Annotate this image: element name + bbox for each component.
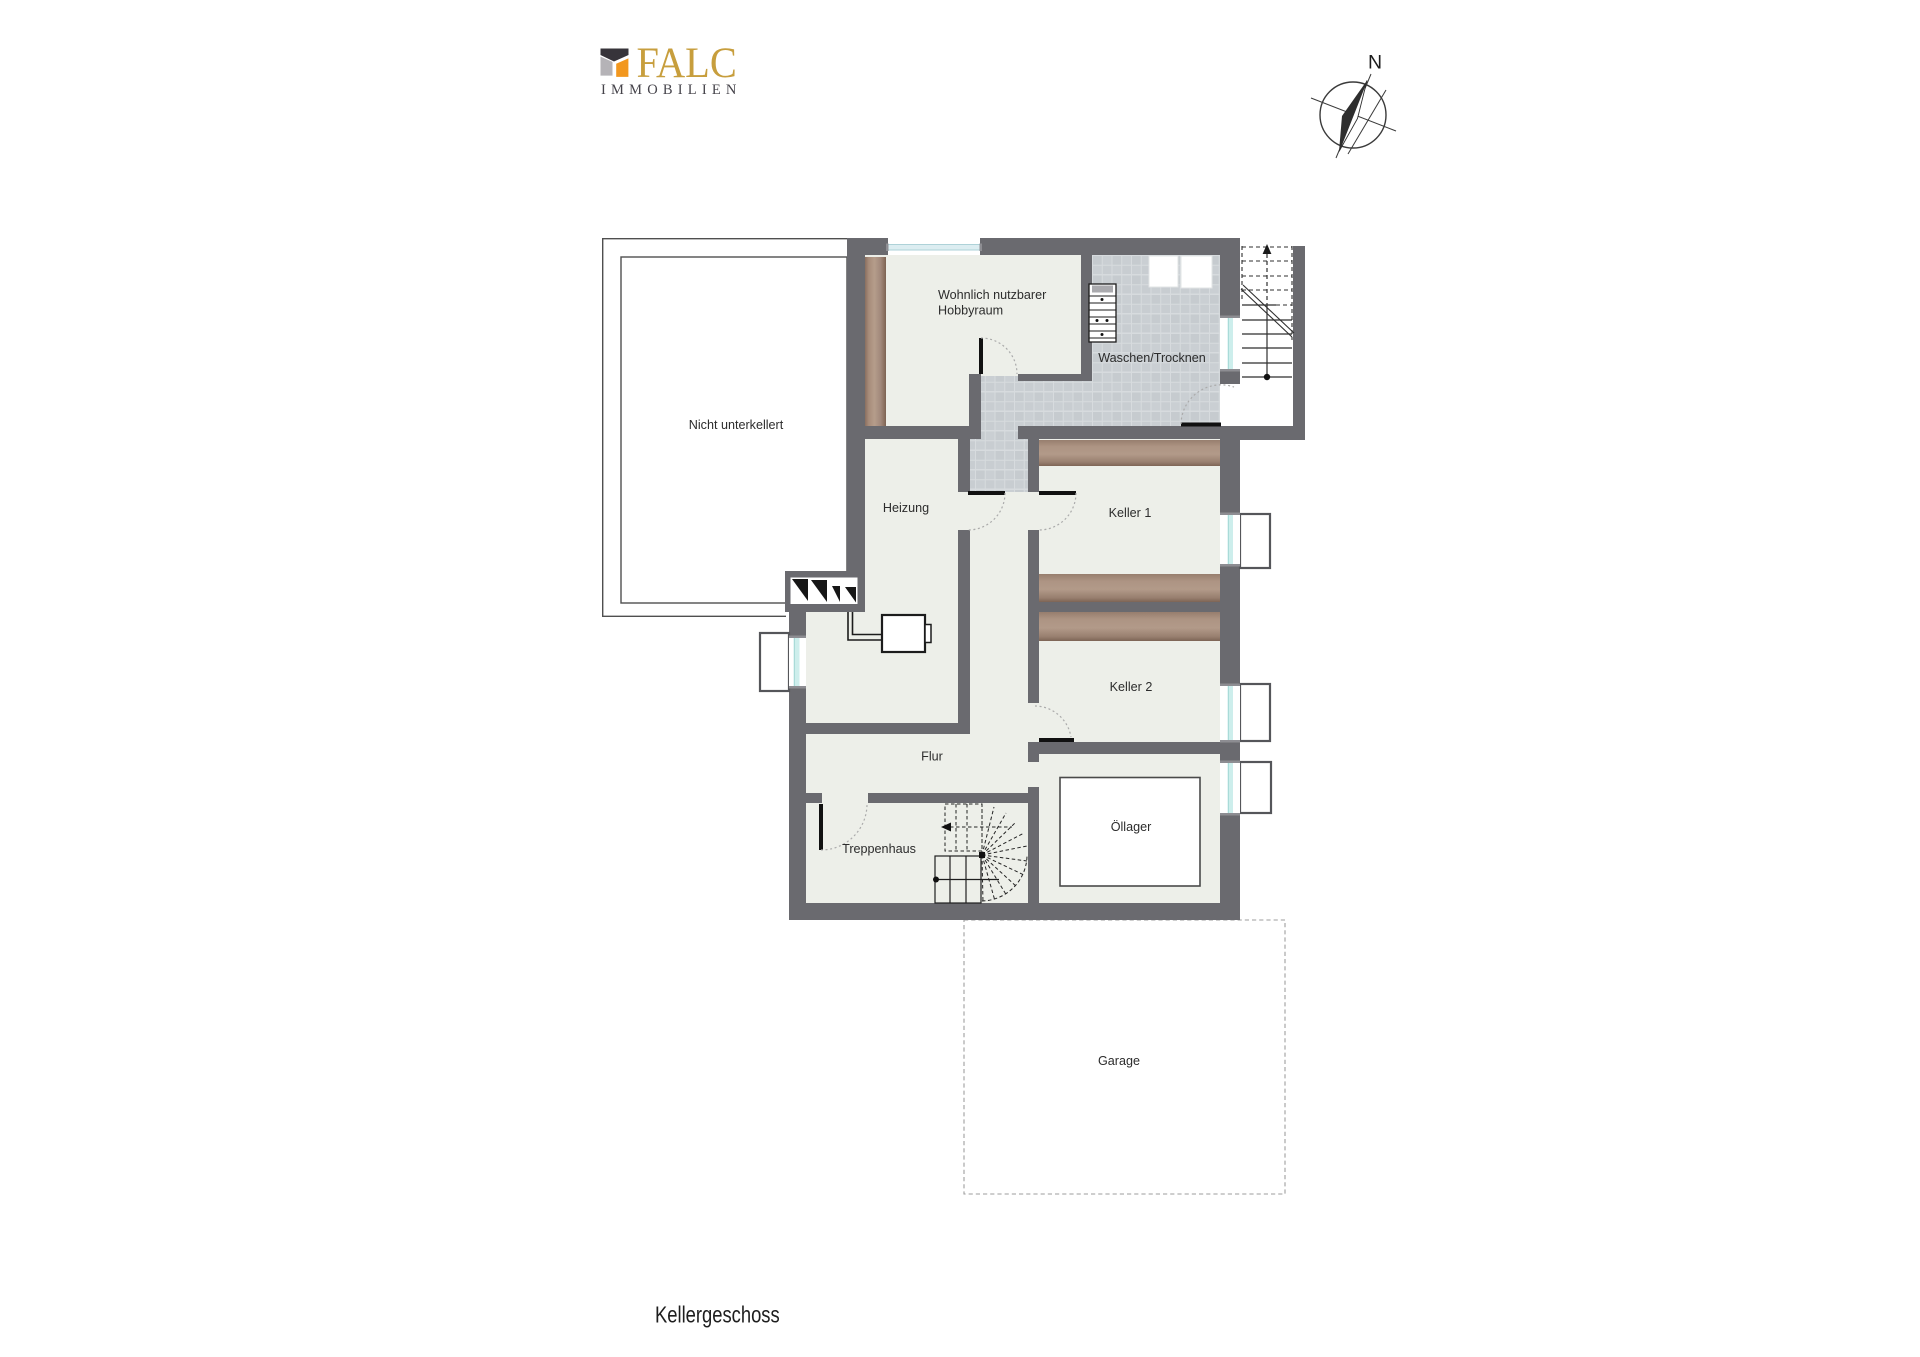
svg-text:Wohnlich nutzbarer: Wohnlich nutzbarer	[938, 288, 1046, 302]
svg-text:Heizung: Heizung	[883, 501, 929, 515]
svg-text:Garage: Garage	[1098, 1054, 1140, 1068]
svg-text:N: N	[1368, 52, 1382, 74]
svg-text:Keller 2: Keller 2	[1110, 680, 1153, 694]
svg-text:Keller 1: Keller 1	[1109, 506, 1152, 520]
svg-text:FALC: FALC	[637, 40, 737, 87]
svg-text:IMMOBILIEN: IMMOBILIEN	[601, 82, 742, 98]
svg-text:Flur: Flur	[921, 750, 943, 764]
svg-text:Hobbyraum: Hobbyraum	[938, 304, 1003, 318]
svg-text:Kellergeschoss: Kellergeschoss	[655, 1303, 780, 1328]
svg-text:Waschen/Trocknen: Waschen/Trocknen	[1098, 351, 1206, 365]
svg-text:Öllager: Öllager	[1111, 820, 1152, 834]
svg-text:Nicht unterkellert: Nicht unterkellert	[689, 418, 784, 432]
svg-text:Treppenhaus: Treppenhaus	[842, 842, 916, 856]
